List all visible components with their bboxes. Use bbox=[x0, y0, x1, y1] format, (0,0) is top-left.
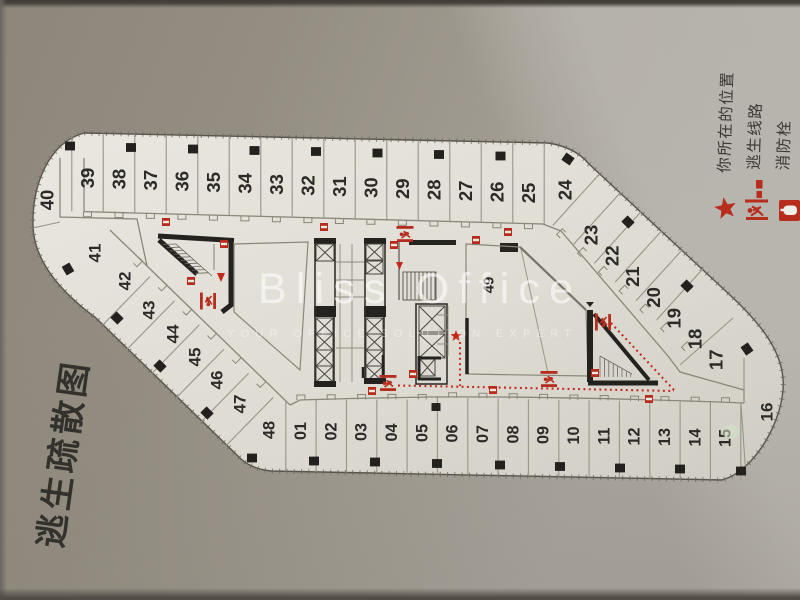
svg-text:08: 08 bbox=[504, 425, 522, 443]
svg-text:48: 48 bbox=[261, 421, 279, 439]
svg-text:31: 31 bbox=[329, 176, 350, 197]
svg-text:你所在的位置: 你所在的位置 bbox=[715, 71, 737, 174]
svg-text:13: 13 bbox=[656, 428, 674, 446]
svg-text:04: 04 bbox=[383, 423, 401, 441]
svg-text:37: 37 bbox=[140, 170, 161, 191]
svg-text:16: 16 bbox=[758, 403, 777, 422]
svg-text:26: 26 bbox=[487, 182, 508, 203]
svg-text:22: 22 bbox=[601, 246, 622, 267]
svg-text:44: 44 bbox=[164, 324, 183, 343]
svg-text:39: 39 bbox=[77, 168, 98, 189]
svg-text:28: 28 bbox=[424, 179, 445, 200]
svg-text:43: 43 bbox=[140, 301, 159, 320]
svg-text:07: 07 bbox=[474, 425, 492, 443]
svg-text:23: 23 bbox=[581, 225, 602, 246]
svg-text:30: 30 bbox=[361, 177, 382, 198]
svg-text:29: 29 bbox=[392, 178, 413, 199]
svg-text:32: 32 bbox=[298, 175, 319, 196]
svg-text:46: 46 bbox=[208, 371, 227, 390]
svg-text:14: 14 bbox=[686, 428, 704, 446]
svg-text:消防栓: 消防栓 bbox=[774, 119, 794, 171]
svg-text:10: 10 bbox=[565, 426, 583, 444]
svg-text:27: 27 bbox=[455, 181, 476, 202]
svg-text:06: 06 bbox=[444, 424, 462, 442]
svg-text:40: 40 bbox=[37, 190, 58, 211]
svg-text:42: 42 bbox=[116, 272, 135, 291]
svg-text:12: 12 bbox=[626, 427, 644, 445]
svg-text:11: 11 bbox=[595, 427, 613, 444]
svg-text:逃生线路: 逃生线路 bbox=[745, 102, 765, 171]
svg-text:34: 34 bbox=[235, 172, 256, 193]
svg-text:38: 38 bbox=[109, 169, 130, 190]
svg-text:逃生疏散图: 逃生疏散图 bbox=[32, 357, 96, 550]
svg-text:09: 09 bbox=[535, 426, 553, 444]
svg-text:45: 45 bbox=[186, 348, 205, 367]
svg-text:Bliss Office: Bliss Office bbox=[258, 265, 573, 313]
svg-text:24: 24 bbox=[555, 179, 576, 200]
svg-text:20: 20 bbox=[643, 287, 664, 308]
svg-text:36: 36 bbox=[172, 171, 193, 192]
svg-text:02: 02 bbox=[322, 422, 340, 440]
svg-text:41: 41 bbox=[86, 244, 105, 263]
svg-text:18: 18 bbox=[685, 329, 706, 350]
svg-text:17: 17 bbox=[705, 350, 726, 371]
svg-text:19: 19 bbox=[664, 308, 685, 329]
svg-text:05: 05 bbox=[413, 424, 431, 442]
svg-text:01: 01 bbox=[292, 422, 310, 440]
svg-text:03: 03 bbox=[353, 423, 371, 441]
svg-text:47: 47 bbox=[231, 395, 250, 414]
svg-text:21: 21 bbox=[622, 266, 643, 287]
svg-text:35: 35 bbox=[203, 172, 224, 193]
svg-text:33: 33 bbox=[266, 174, 287, 195]
svg-text:25: 25 bbox=[518, 183, 539, 204]
